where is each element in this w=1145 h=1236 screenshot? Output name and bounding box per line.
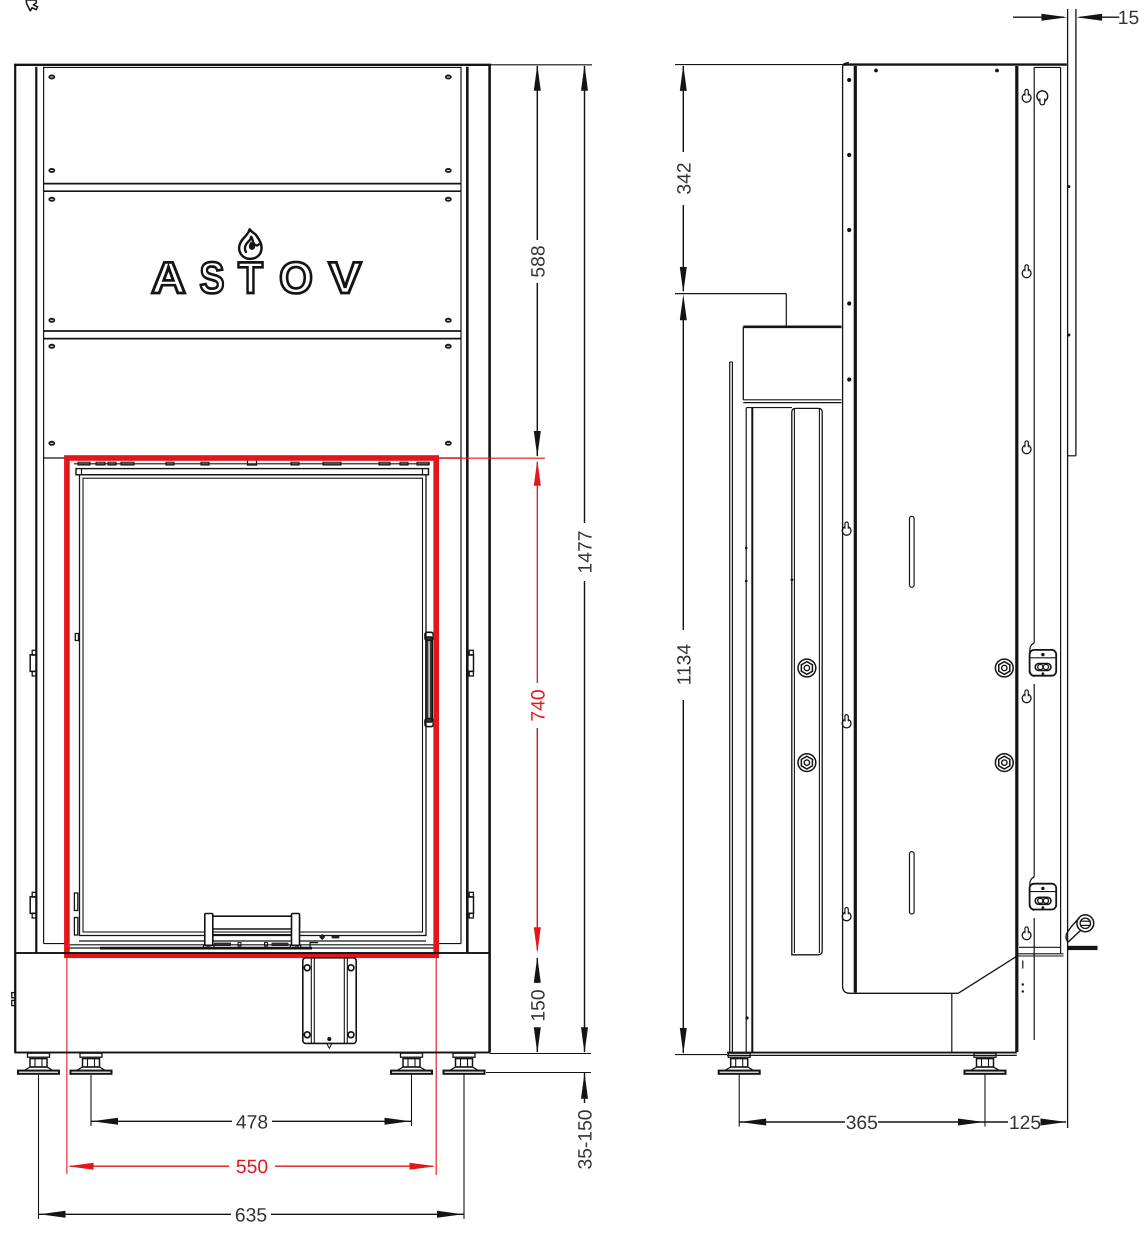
svg-text:T: T (238, 254, 263, 303)
svg-text:478: 478 (236, 1112, 268, 1133)
svg-text:635: 635 (235, 1205, 267, 1226)
svg-text:588: 588 (528, 245, 549, 277)
svg-text:150: 150 (528, 989, 549, 1021)
svg-text:O: O (279, 254, 313, 303)
svg-text:740: 740 (528, 689, 549, 721)
svg-text:1134: 1134 (674, 644, 695, 686)
svg-text:125: 125 (1009, 1113, 1041, 1134)
svg-text:550: 550 (236, 1157, 268, 1178)
svg-text:1477: 1477 (576, 531, 597, 574)
svg-text:A: A (151, 254, 186, 303)
svg-text:15: 15 (1118, 8, 1139, 29)
svg-text:342: 342 (674, 162, 695, 194)
svg-text:35-150: 35-150 (576, 1109, 597, 1169)
svg-text:S: S (200, 254, 225, 303)
svg-text:V: V (329, 254, 362, 303)
svg-text:365: 365 (846, 1113, 878, 1134)
